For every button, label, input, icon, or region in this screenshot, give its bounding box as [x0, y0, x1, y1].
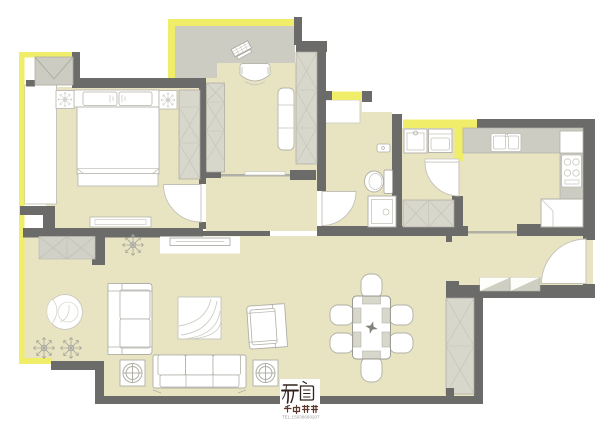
svg-text:TEL:15038660207: TEL:15038660207: [282, 415, 320, 420]
